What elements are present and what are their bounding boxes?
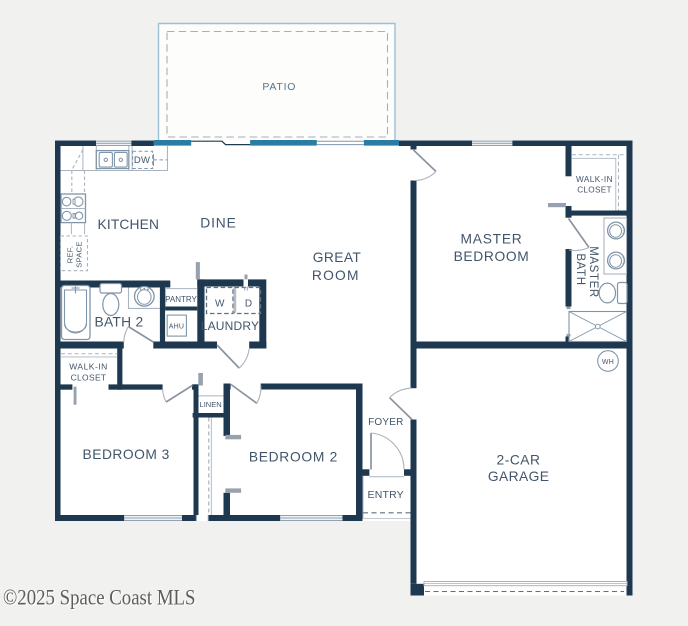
svg-text:CLOSET: CLOSET [577, 185, 612, 194]
svg-text:REF.: REF. [65, 246, 74, 263]
svg-text:ROOM: ROOM [312, 268, 360, 283]
svg-text:DW: DW [134, 155, 150, 166]
svg-text:MASTER: MASTER [461, 232, 523, 247]
svg-text:PATIO: PATIO [262, 81, 296, 93]
svg-text:DINE: DINE [200, 216, 237, 231]
svg-text:BEDROOM: BEDROOM [454, 249, 530, 264]
svg-text:BATH 2: BATH 2 [94, 314, 143, 329]
svg-text:CLOSET: CLOSET [71, 373, 107, 383]
svg-text:©2025 Space Coast MLS: ©2025 Space Coast MLS [3, 585, 196, 610]
svg-text:MASTER: MASTER [587, 246, 599, 298]
svg-text:D: D [245, 299, 252, 310]
svg-text:LAUNDRY: LAUNDRY [201, 319, 260, 333]
svg-text:BEDROOM 2: BEDROOM 2 [249, 449, 338, 464]
svg-text:ENTRY: ENTRY [367, 489, 403, 501]
svg-text:2-CAR: 2-CAR [497, 453, 541, 468]
svg-text:AHU: AHU [169, 324, 184, 331]
svg-text:BATH: BATH [574, 253, 586, 285]
svg-text:GREAT: GREAT [313, 250, 362, 265]
svg-text:WH: WH [602, 359, 614, 366]
svg-text:BEDROOM 3: BEDROOM 3 [83, 447, 170, 462]
svg-text:SPACE: SPACE [75, 241, 84, 267]
svg-text:KITCHEN: KITCHEN [97, 217, 159, 232]
svg-text:W: W [215, 299, 225, 310]
svg-text:FOYER: FOYER [368, 417, 403, 428]
svg-text:LINEN: LINEN [200, 400, 222, 409]
svg-text:WALK-IN: WALK-IN [69, 362, 108, 372]
svg-text:WALK-IN: WALK-IN [576, 175, 613, 184]
svg-text:GARAGE: GARAGE [488, 469, 549, 484]
svg-text:PANTRY: PANTRY [165, 295, 197, 304]
